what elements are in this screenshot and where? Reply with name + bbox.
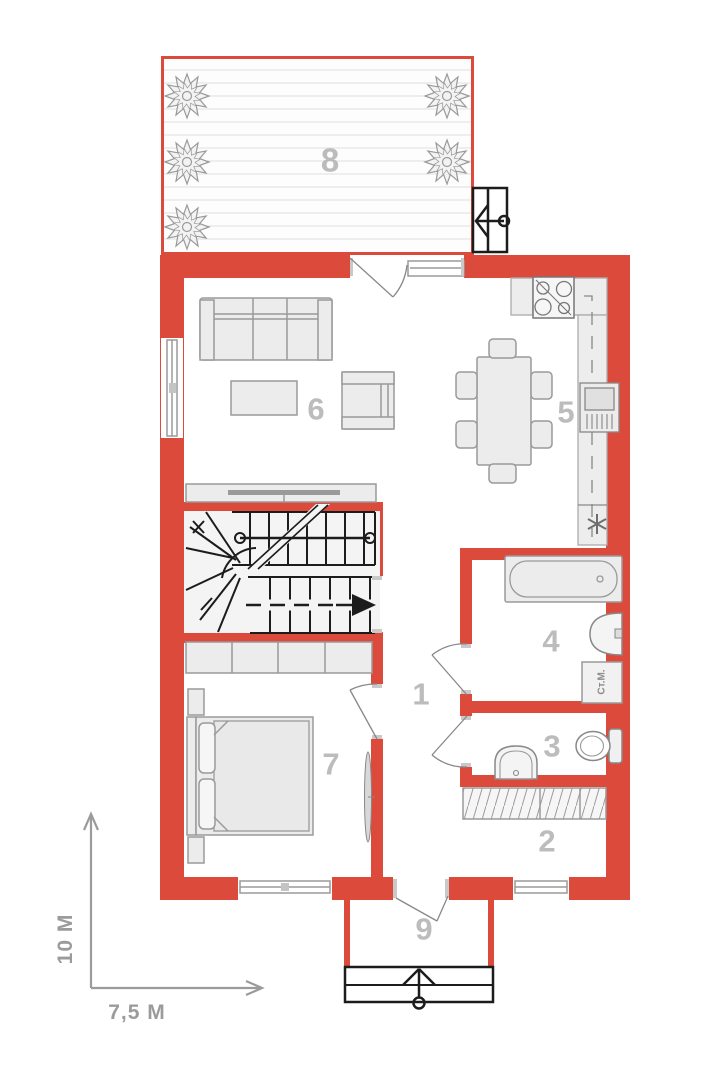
window xyxy=(513,877,569,900)
dining-table xyxy=(477,357,531,465)
dining-chair xyxy=(489,464,516,483)
armchair xyxy=(342,372,394,429)
bathroom-door xyxy=(432,644,471,695)
bathroom-sink xyxy=(590,613,622,655)
room-label-9: 9 xyxy=(415,914,432,945)
bedroom-door xyxy=(350,684,382,739)
room-label-3: 3 xyxy=(543,731,560,762)
toilet xyxy=(576,729,622,763)
bed xyxy=(187,717,313,835)
kitchen-sink xyxy=(580,383,619,432)
toilet-door xyxy=(432,716,471,767)
bedroom-wardrobe xyxy=(186,642,372,673)
dimension-arrow-vertical xyxy=(84,814,98,988)
room-label-4: 4 xyxy=(542,626,559,657)
nightstand xyxy=(188,689,204,715)
sofa xyxy=(200,298,332,360)
room-label-8: 8 xyxy=(321,144,339,177)
staircase xyxy=(184,504,382,633)
room-label-6: 6 xyxy=(307,394,324,425)
entry-wardrobe xyxy=(463,788,606,819)
floor-plan: 1 2 3 4 5 6 7 8 9 10 M 7,5 M Ст.М. xyxy=(0,0,707,1080)
room-label-7: 7 xyxy=(322,749,339,780)
nightstand xyxy=(188,837,204,863)
dining-chair xyxy=(531,421,552,448)
window xyxy=(161,338,183,438)
stove xyxy=(533,277,574,318)
washing-machine-label: Ст.М. xyxy=(597,669,608,694)
dining-chair xyxy=(456,421,477,448)
dining-chair xyxy=(456,372,477,399)
dimension-arrow-horizontal xyxy=(91,981,262,995)
dining-chair xyxy=(531,372,552,399)
height-dimension-label: 10 M xyxy=(54,914,78,965)
bathtub xyxy=(505,556,622,602)
room-label-5: 5 xyxy=(557,397,574,428)
gate-arrow-icon xyxy=(473,188,509,252)
width-dimension-label: 7,5 M xyxy=(108,1001,166,1025)
room-label-2: 2 xyxy=(538,826,555,857)
terrace xyxy=(163,58,473,254)
coffee-table xyxy=(231,381,297,415)
tv-console xyxy=(186,484,376,502)
room-label-1: 1 xyxy=(412,679,429,710)
toilet-sink xyxy=(495,746,537,779)
floor-plan-drawing xyxy=(0,0,707,1080)
window xyxy=(238,877,332,900)
dining-chair xyxy=(489,339,516,358)
